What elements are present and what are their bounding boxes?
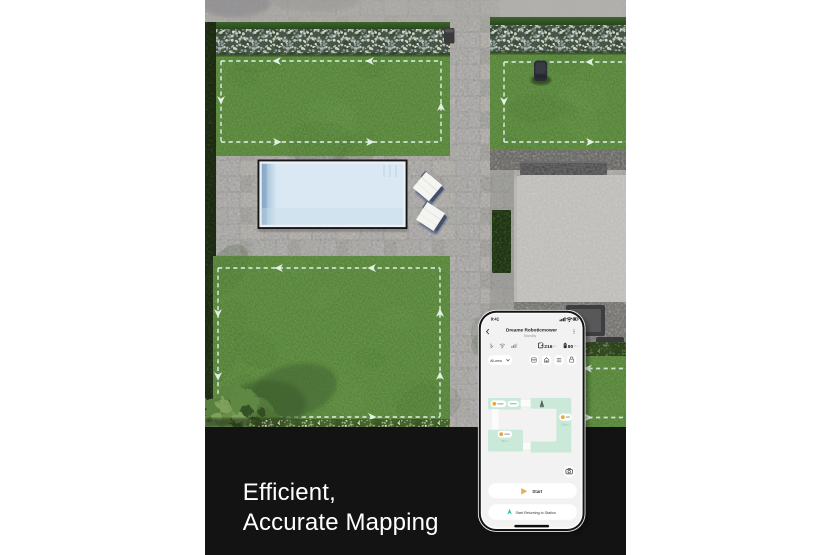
svg-text:Dreame Roboticmower: Dreame Roboticmower — [506, 328, 557, 333]
svg-text:36m²: 36m² — [501, 439, 507, 443]
svg-text:80: 80 — [568, 344, 574, 350]
svg-text:Accurate Mapping: Accurate Mapping — [243, 509, 439, 536]
svg-text:Standby: Standby — [524, 334, 537, 338]
svg-text:216m²: 216m² — [561, 423, 569, 427]
svg-text:Efficient,: Efficient, — [243, 479, 336, 506]
svg-text:m²: m² — [553, 344, 556, 348]
svg-text:Start: Start — [532, 489, 543, 494]
svg-text:Start Returning to Station: Start Returning to Station — [516, 511, 556, 515]
svg-text:9:41: 9:41 — [491, 317, 500, 322]
svg-text:All-area: All-area — [490, 359, 502, 363]
svg-text:216: 216 — [544, 344, 552, 350]
svg-text:%↗: %↗ — [574, 344, 580, 348]
